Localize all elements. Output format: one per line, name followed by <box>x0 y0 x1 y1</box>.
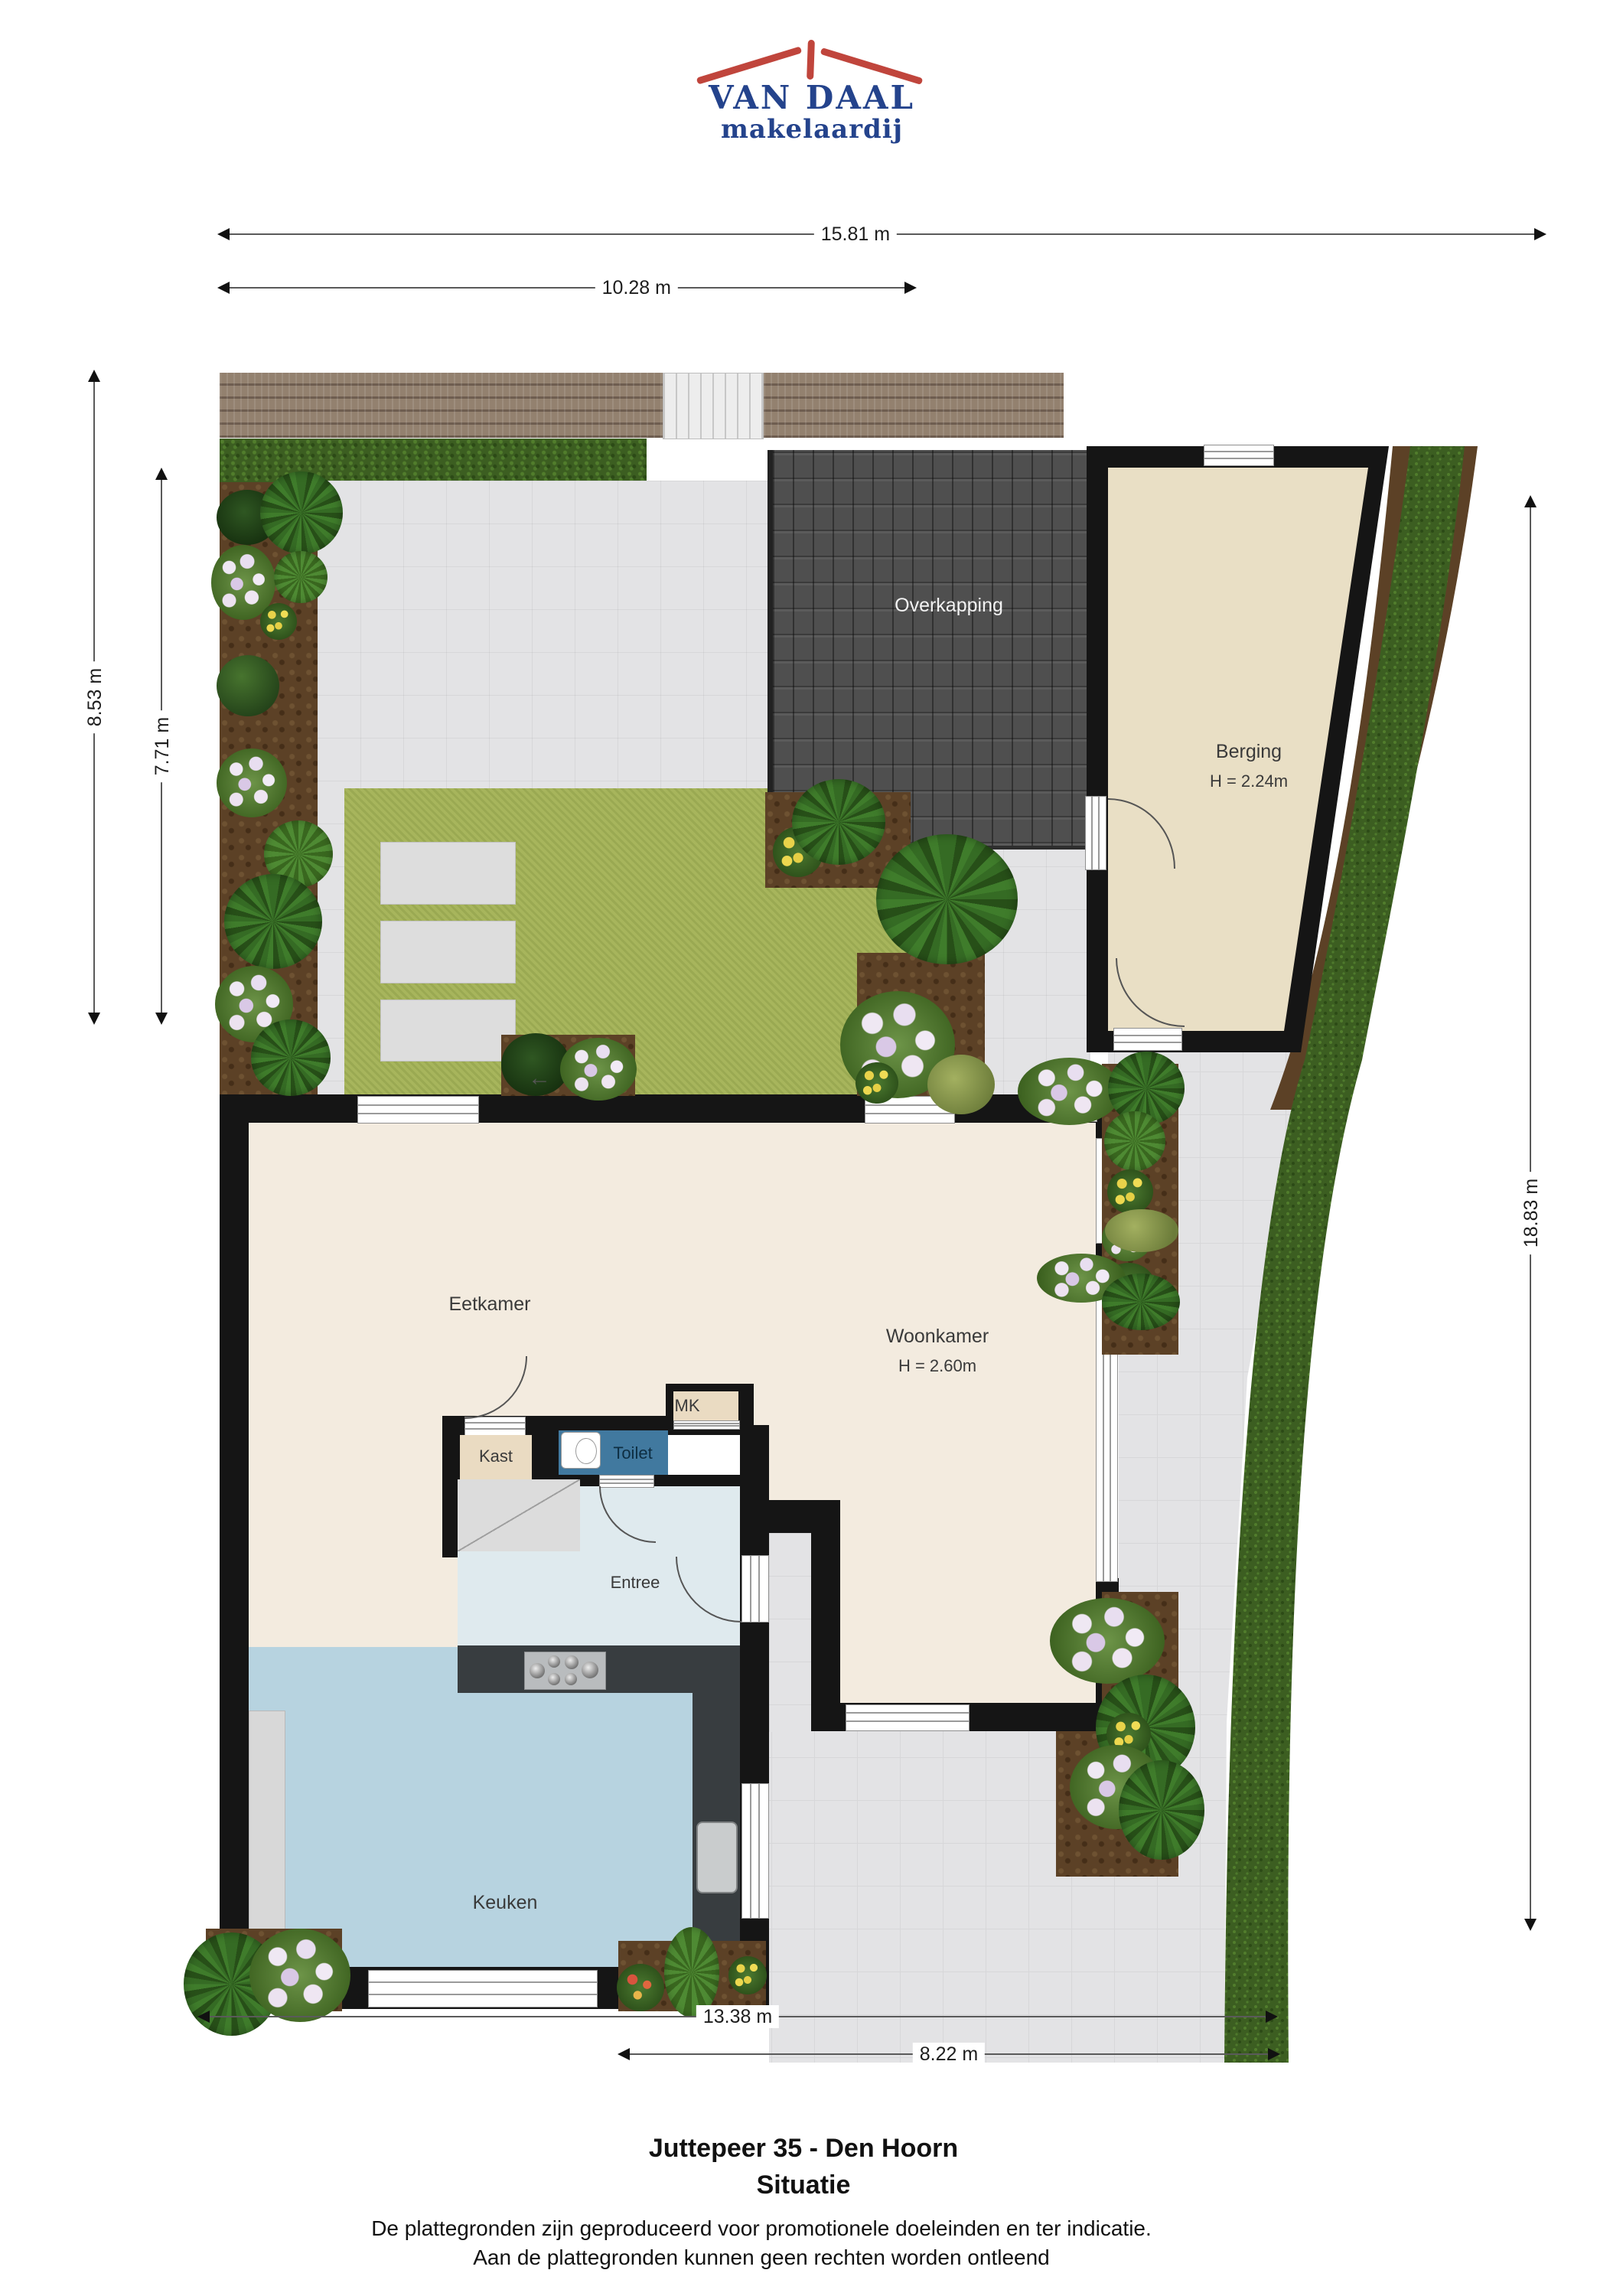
dimension-left-outer: 8.53 m <box>93 372 95 1022</box>
arrow-down-icon <box>88 1013 100 1025</box>
plant-palm <box>224 874 322 969</box>
dimension-left-inner: 7.71 m <box>161 470 162 1022</box>
floor-woonkamer-lower <box>840 1500 1096 1703</box>
floor-woonkamer-mid <box>769 1425 1096 1500</box>
floor-entree-west <box>458 1551 580 1647</box>
floor-keuken <box>249 1647 740 1967</box>
dimension-label: 18.83 m <box>1520 1172 1543 1254</box>
plant-palm <box>251 1019 331 1096</box>
garden-entrance-arrow-icon: ← <box>528 1065 551 1091</box>
terrace-stone <box>380 842 516 905</box>
core-wall-kast-toilet <box>532 1425 559 1482</box>
berging-window <box>1204 445 1274 466</box>
plant-flowers <box>1050 1598 1165 1684</box>
room-height-woonkamer: H = 2.60m <box>898 1356 976 1376</box>
plant-bush-olive <box>1105 1209 1178 1252</box>
berging-side-door <box>1085 796 1106 870</box>
window-keuken-south <box>368 1970 598 2007</box>
footer-disclaimer-1: De plattegronden zijn geproduceerd voor … <box>0 2216 1523 2241</box>
arrow-up-icon <box>1524 495 1537 507</box>
arrow-right-icon <box>1266 2011 1278 2023</box>
dimension-label: 13.38 m <box>696 2005 779 2028</box>
arrow-left-icon <box>217 282 230 294</box>
deck-stairs <box>663 373 764 439</box>
plant-flowers <box>249 1929 350 2022</box>
plant-palm <box>876 834 1018 964</box>
room-label-entree: Entree <box>611 1573 660 1593</box>
arrow-right-icon <box>1268 2048 1280 2060</box>
room-label-eetkamer: Eetkamer <box>449 1293 531 1316</box>
arrow-right-icon <box>1534 228 1546 240</box>
arrow-left-icon <box>217 228 230 240</box>
plant-fern <box>274 551 328 603</box>
room-label-mk: MK <box>675 1396 700 1416</box>
terrace-stone <box>380 1000 516 1062</box>
front-door <box>741 1555 769 1623</box>
paving-entrance-nook <box>769 1533 811 1732</box>
house-wall-west <box>220 1094 249 2009</box>
arrow-up-icon <box>88 370 100 382</box>
footer-subtitle: Situatie <box>31 2170 1576 2200</box>
plant-flowers <box>217 748 287 817</box>
window-eetkamer-north <box>357 1096 479 1124</box>
toilet-fixture <box>561 1432 601 1469</box>
arrow-left-icon <box>618 2048 630 2060</box>
terrace-stone <box>380 921 516 983</box>
plant-flowers <box>1018 1058 1121 1125</box>
dimension-top-total: 15.81 m <box>220 233 1544 235</box>
plant-palm <box>260 471 343 554</box>
plant-bush <box>217 655 279 716</box>
dimension-bottom-total: 13.38 m <box>200 2016 1276 2017</box>
kitchen-counter-west <box>249 1711 285 1965</box>
dimension-top-left: 10.28 m <box>220 287 914 289</box>
plant-palm <box>1119 1760 1204 1860</box>
berging-bottom-door <box>1113 1028 1182 1051</box>
room-label-toilet: Toilet <box>613 1443 652 1463</box>
arrow-left-icon <box>197 2011 210 2023</box>
room-label-woonkamer: Woonkamer <box>886 1326 989 1348</box>
plant-fern <box>1104 1111 1165 1171</box>
window-keuken-east <box>741 1783 769 1919</box>
plant-fern <box>664 1927 719 2017</box>
plant-flowers-yellow <box>1107 1169 1153 1214</box>
floorplan-page: VAN DAAL makelaardij 15.81 m 10.28 m 8.5… <box>0 0 1623 2296</box>
room-label-berging: Berging <box>1216 741 1282 763</box>
kitchen-sink <box>696 1821 738 1893</box>
kast-opening <box>464 1417 526 1436</box>
plant-palm <box>1102 1274 1180 1330</box>
plant-flowers <box>560 1038 637 1101</box>
room-label-kast: Kast <box>479 1446 513 1466</box>
dimension-label: 8.22 m <box>913 2043 985 2066</box>
arrow-right-icon <box>904 282 917 294</box>
mk-door <box>673 1420 740 1430</box>
room-label-overkapping: Overkapping <box>895 595 1003 617</box>
plant-flowers-yellow <box>728 1956 767 1994</box>
dimension-bottom-right: 8.22 m <box>620 2053 1278 2055</box>
footer-title: Juttepeer 35 - Den Hoorn <box>31 2134 1576 2164</box>
dimension-label: 8.53 m <box>83 661 106 733</box>
room-height-berging: H = 2.24m <box>1210 771 1288 791</box>
footer-disclaimer-2: Aan de plattegronden kunnen geen rechten… <box>0 2245 1523 2270</box>
room-label-keuken: Keuken <box>473 1892 538 1914</box>
plant-flowers-yellow <box>855 1062 898 1104</box>
wood-deck <box>220 373 1064 438</box>
notch-wall-east <box>811 1533 840 1703</box>
plant-flowers-red <box>617 1964 664 2011</box>
arrow-up-icon <box>155 468 168 480</box>
plant-bush-olive <box>927 1055 995 1114</box>
staircase <box>458 1479 580 1551</box>
window-woonkamer-south <box>846 1704 970 1731</box>
arrow-down-icon <box>155 1013 168 1025</box>
dimension-label: 10.28 m <box>595 276 678 299</box>
dimension-right-side: 18.83 m <box>1530 497 1531 1929</box>
plant-palm <box>792 779 885 865</box>
floor-eetkamer-lower <box>249 1425 458 1647</box>
plant-flowers-yellow <box>260 603 297 640</box>
floor-living-upper <box>249 1123 1096 1425</box>
cooktop <box>524 1652 606 1690</box>
dimension-label: 7.71 m <box>151 710 174 782</box>
arrow-down-icon <box>1524 1919 1537 1931</box>
dimension-label: 15.81 m <box>814 223 897 246</box>
